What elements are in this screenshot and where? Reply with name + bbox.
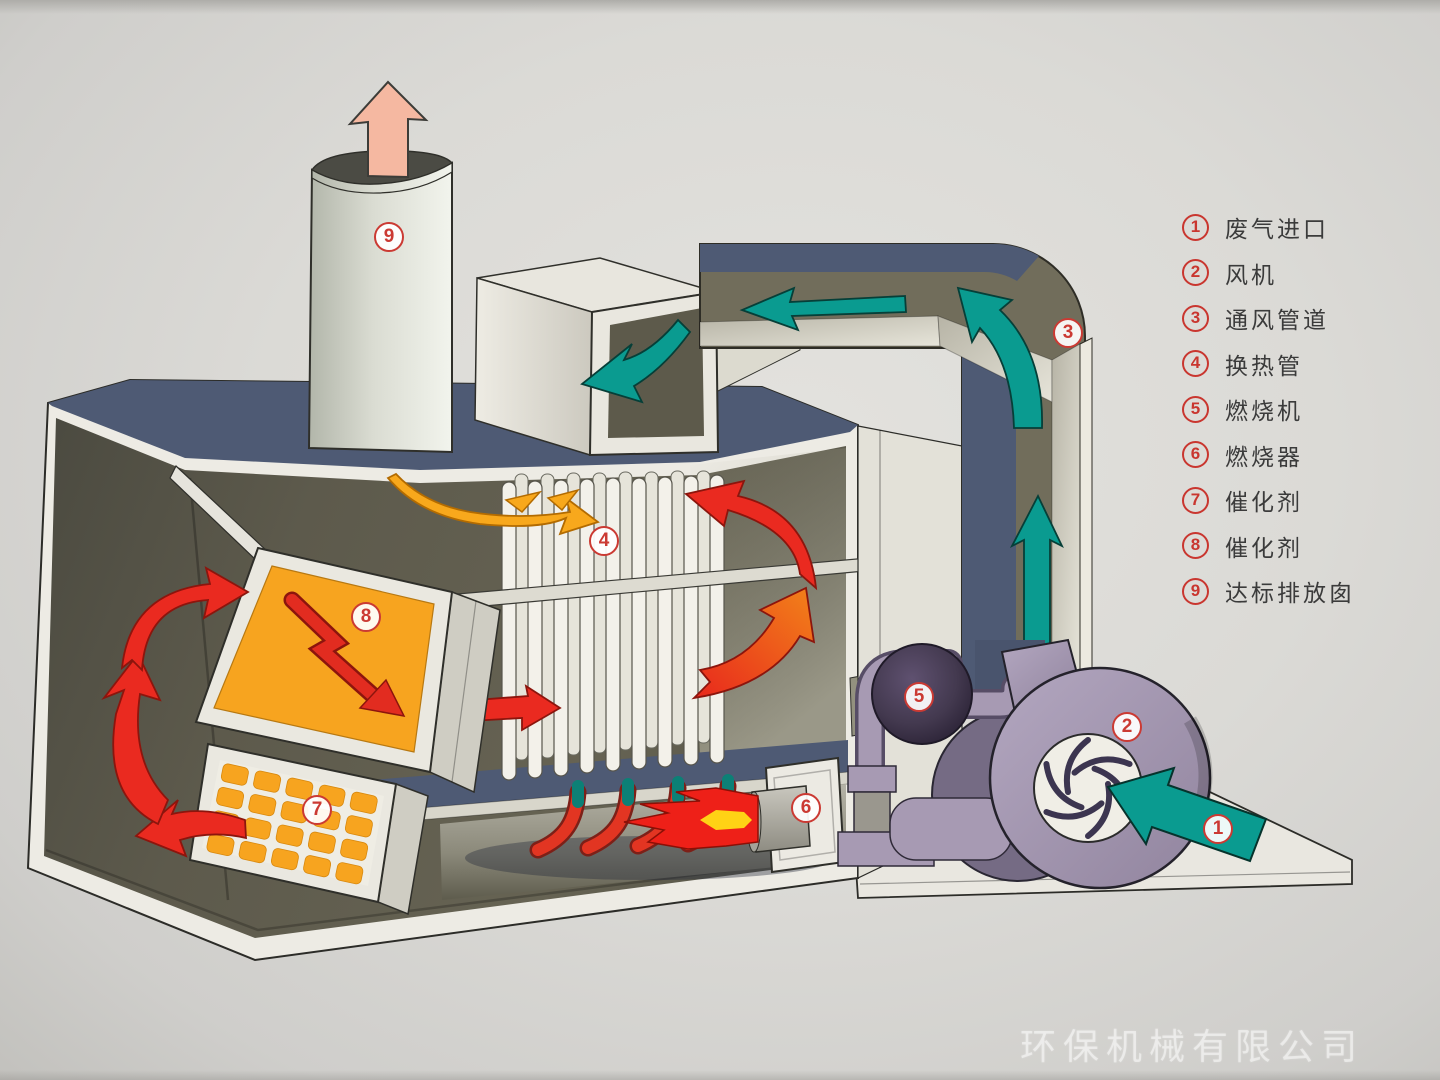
legend-num-7: 7 (1182, 487, 1209, 514)
legend-item-3: 3 通风管道 (1182, 304, 1355, 332)
legend-label-7: 催化剂 (1225, 483, 1303, 517)
legend-label-5: 燃烧机 (1225, 392, 1303, 426)
callout-9: 9 (374, 222, 404, 252)
legend-item-7: 7 催化剂 (1182, 486, 1355, 514)
legend-num-9: 9 (1182, 578, 1209, 605)
callout-1: 1 (1203, 814, 1233, 844)
callout-2: 2 (1112, 712, 1142, 742)
legend-label-4: 换热管 (1225, 347, 1303, 381)
legend: 1 废气进口 2 风机 3 通风管道 4 换热管 5 燃烧机 6 燃烧器 7 催… (1182, 213, 1355, 623)
callout-5: 5 (904, 682, 934, 712)
legend-num-6: 6 (1182, 441, 1209, 468)
callout-4: 4 (589, 526, 619, 556)
legend-label-3: 通风管道 (1225, 301, 1329, 335)
legend-num-5: 5 (1182, 396, 1209, 423)
legend-label-1: 废气进口 (1225, 210, 1329, 244)
legend-num-1: 1 (1182, 214, 1209, 241)
legend-item-4: 4 换热管 (1182, 350, 1355, 378)
legend-item-8: 8 催化剂 (1182, 532, 1355, 560)
callout-6: 6 (791, 793, 821, 823)
callout-7: 7 (302, 795, 332, 825)
callout-3: 3 (1053, 318, 1083, 348)
legend-num-3: 3 (1182, 305, 1209, 332)
legend-num-2: 2 (1182, 259, 1209, 286)
legend-label-8: 催化剂 (1225, 529, 1303, 563)
legend-label-9: 达标排放囱 (1225, 574, 1355, 608)
legend-item-5: 5 燃烧机 (1182, 395, 1355, 423)
fan (990, 640, 1210, 888)
legend-item-6: 6 燃烧器 (1182, 441, 1355, 469)
legend-item-2: 2 风机 (1182, 259, 1355, 287)
legend-label-2: 风机 (1225, 256, 1277, 290)
legend-num-4: 4 (1182, 350, 1209, 377)
watermark: 环保机械有限公司 (1020, 1018, 1440, 1070)
chimney (309, 82, 452, 452)
callout-8: 8 (351, 602, 381, 632)
catalytic-combustion-diagram-page: 1 2 3 4 5 6 7 8 9 1 废气进口 2 风机 3 通风管道 4 换… (0, 0, 1440, 1080)
legend-item-1: 1 废气进口 (1182, 213, 1355, 241)
legend-label-6: 燃烧器 (1225, 438, 1303, 472)
legend-item-9: 9 达标排放囱 (1182, 577, 1355, 605)
legend-num-8: 8 (1182, 532, 1209, 559)
